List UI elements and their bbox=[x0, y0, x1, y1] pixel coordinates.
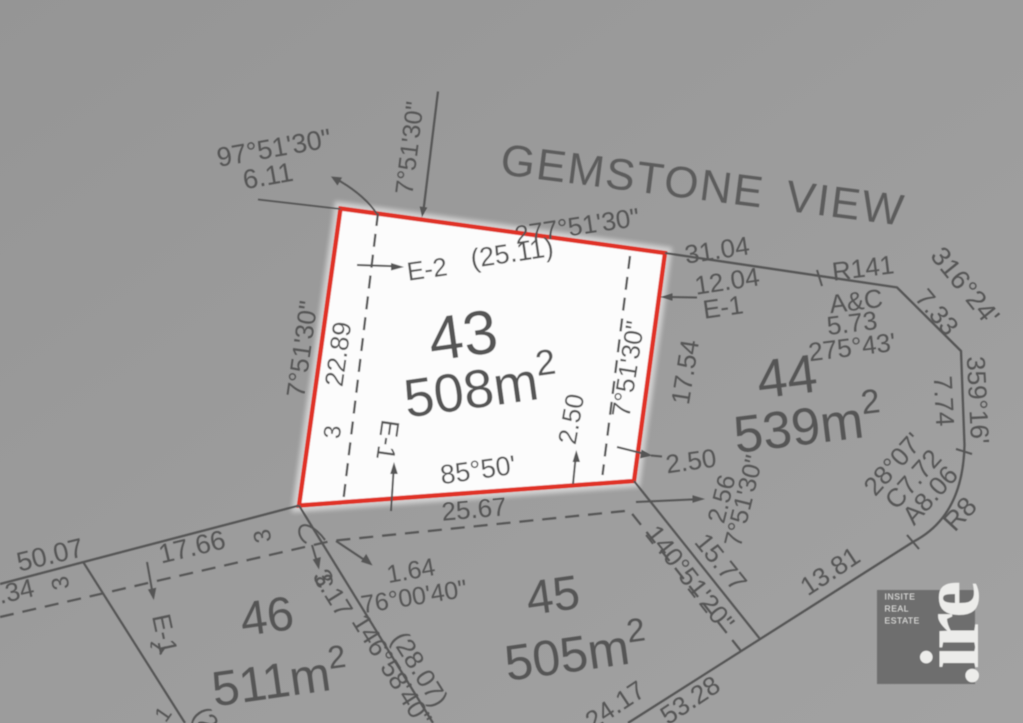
svg-text:359°16': 359°16' bbox=[961, 355, 996, 444]
svg-text:E-1: E-1 bbox=[370, 418, 405, 462]
svg-text:E-1: E-1 bbox=[701, 289, 745, 324]
svg-text:46: 46 bbox=[237, 587, 297, 647]
svg-text:ESTATE: ESTATE bbox=[885, 616, 920, 626]
svg-text:7.74: 7.74 bbox=[928, 375, 961, 427]
svg-text:E-2: E-2 bbox=[405, 251, 449, 286]
svg-text:.ire: .ire bbox=[904, 582, 997, 686]
svg-text:3: 3 bbox=[319, 424, 347, 440]
svg-text:45: 45 bbox=[523, 566, 583, 626]
svg-text:INSITE: INSITE bbox=[885, 592, 916, 602]
svg-text:25.67: 25.67 bbox=[440, 491, 507, 527]
svg-text:REAL: REAL bbox=[885, 604, 910, 614]
